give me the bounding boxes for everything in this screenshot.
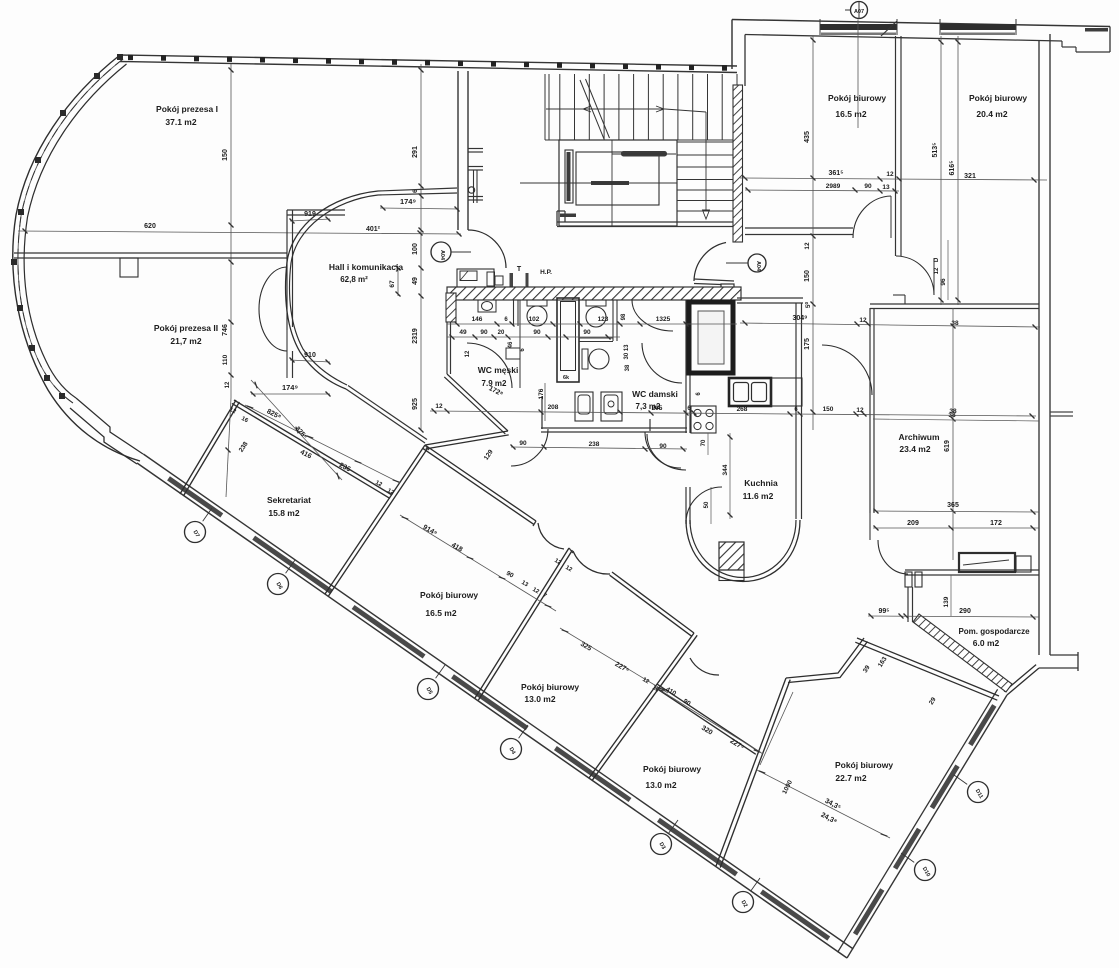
svg-text:12: 12	[859, 317, 867, 324]
svg-text:70: 70	[701, 439, 707, 446]
svg-text:268: 268	[737, 406, 748, 413]
svg-text:Pokój biurowy: Pokój biurowy	[521, 682, 579, 692]
svg-text:2319: 2319	[412, 328, 419, 344]
svg-text:15.8 m2: 15.8 m2	[268, 508, 299, 518]
svg-text:Sekretariat: Sekretariat	[267, 495, 311, 505]
svg-text:50: 50	[704, 501, 710, 508]
svg-text:90: 90	[864, 183, 872, 190]
svg-text:49: 49	[459, 329, 467, 336]
svg-text:Pokój biurowy: Pokój biurowy	[643, 764, 701, 774]
svg-text:5⁰: 5⁰	[804, 302, 812, 309]
svg-text:90: 90	[480, 329, 488, 336]
svg-text:12: 12	[804, 242, 811, 250]
svg-text:174⁹: 174⁹	[400, 197, 417, 206]
svg-text:12: 12	[435, 403, 443, 410]
svg-text:T: T	[517, 266, 522, 273]
svg-text:90: 90	[533, 329, 541, 336]
svg-text:90: 90	[519, 440, 527, 447]
svg-text:150: 150	[804, 270, 811, 282]
svg-text:20: 20	[498, 330, 505, 336]
svg-text:H.P.: H.P.	[540, 269, 552, 276]
svg-text:Hall i komunikacja: Hall i komunikacja	[329, 262, 403, 272]
svg-text:Kuchnia: Kuchnia	[744, 478, 778, 488]
svg-text:Pokój biurowy: Pokój biurowy	[828, 93, 886, 103]
svg-text:746: 746	[222, 324, 229, 336]
svg-text:A07: A07	[854, 9, 864, 15]
svg-text:12: 12	[934, 267, 940, 274]
svg-text:22.7 m2: 22.7 m2	[835, 773, 866, 783]
svg-text:7,3 m2: 7,3 m2	[636, 402, 661, 411]
svg-text:616⁵: 616⁵	[949, 161, 956, 176]
svg-text:99⁵: 99⁵	[878, 608, 889, 615]
svg-text:6.0 m2: 6.0 m2	[973, 638, 1000, 648]
svg-text:Pokój biurowy: Pokój biurowy	[420, 590, 478, 600]
svg-text:12: 12	[225, 381, 231, 388]
svg-text:13: 13	[882, 184, 890, 191]
svg-text:6k: 6k	[563, 375, 570, 381]
svg-text:12: 12	[886, 171, 894, 178]
svg-text:344: 344	[722, 464, 729, 475]
svg-text:49: 49	[412, 277, 419, 285]
svg-text:110: 110	[222, 354, 229, 365]
svg-text:321: 321	[964, 173, 976, 180]
svg-text:123: 123	[598, 316, 609, 323]
svg-text:A04: A04	[439, 250, 445, 261]
svg-text:20.4 m2: 20.4 m2	[976, 109, 1007, 119]
svg-text:100: 100	[412, 243, 419, 255]
svg-text:12: 12	[856, 407, 864, 414]
svg-text:38: 38	[625, 364, 631, 371]
svg-text:WC damski: WC damski	[632, 389, 678, 399]
svg-text:Archiwum: Archiwum	[898, 432, 940, 442]
svg-text:38: 38	[948, 412, 956, 419]
svg-text:146: 146	[472, 316, 483, 323]
svg-text:620: 620	[144, 223, 156, 230]
svg-text:291: 291	[412, 146, 419, 158]
svg-text:WC męski: WC męski	[478, 365, 519, 375]
svg-text:139: 139	[943, 596, 950, 607]
svg-text:90: 90	[583, 329, 591, 336]
svg-text:304⁹: 304⁹	[792, 315, 807, 322]
svg-text:Pokój biurowy: Pokój biurowy	[835, 760, 893, 770]
svg-text:401²: 401²	[366, 226, 381, 233]
svg-text:96: 96	[940, 278, 947, 286]
svg-text:21,7 m2: 21,7 m2	[170, 336, 201, 346]
svg-text:13.0 m2: 13.0 m2	[524, 694, 555, 704]
svg-text:290: 290	[959, 608, 971, 615]
svg-text:90: 90	[659, 443, 667, 450]
svg-text:238: 238	[589, 441, 600, 448]
svg-text:435: 435	[804, 131, 811, 143]
svg-text:30 13: 30 13	[624, 344, 630, 360]
svg-text:Pom. gospodarcze: Pom. gospodarcze	[958, 627, 1030, 636]
svg-text:102: 102	[529, 316, 540, 323]
svg-text:37.1 m2: 37.1 m2	[165, 117, 196, 127]
svg-text:2989: 2989	[826, 183, 841, 190]
svg-text:11.6 m2: 11.6 m2	[743, 491, 774, 501]
svg-text:67: 67	[389, 280, 396, 288]
svg-text:62,8 m²: 62,8 m²	[340, 275, 368, 284]
svg-text:D: D	[934, 257, 940, 262]
svg-text:209: 209	[907, 520, 919, 527]
svg-text:925: 925	[412, 398, 419, 410]
svg-text:23.4 m2: 23.4 m2	[899, 444, 930, 454]
svg-text:176: 176	[538, 388, 545, 399]
svg-text:365: 365	[947, 502, 959, 509]
svg-text:150: 150	[823, 406, 834, 413]
svg-text:1325: 1325	[656, 316, 671, 323]
svg-text:174⁹: 174⁹	[282, 383, 299, 392]
svg-text:208: 208	[548, 404, 559, 411]
svg-text:150: 150	[222, 149, 229, 161]
svg-text:46: 46	[508, 341, 514, 348]
svg-text:619: 619	[944, 440, 951, 452]
svg-text:13.0 m2: 13.0 m2	[645, 780, 676, 790]
svg-text:98: 98	[621, 313, 627, 320]
svg-text:Pokój biurowy: Pokój biurowy	[969, 93, 1027, 103]
svg-text:361⁵: 361⁵	[829, 170, 844, 177]
svg-text:12: 12	[465, 350, 471, 357]
svg-text:Pokój prezesa II: Pokój prezesa II	[154, 323, 218, 333]
svg-text:172: 172	[990, 520, 1002, 527]
svg-text:175: 175	[804, 338, 811, 350]
svg-text:A04: A04	[755, 261, 761, 272]
svg-text:16.5 m2: 16.5 m2	[835, 109, 866, 119]
svg-text:513⁵: 513⁵	[932, 143, 939, 158]
svg-text:16.5 m2: 16.5 m2	[425, 608, 456, 618]
svg-text:Pokój prezesa I: Pokój prezesa I	[156, 104, 218, 114]
